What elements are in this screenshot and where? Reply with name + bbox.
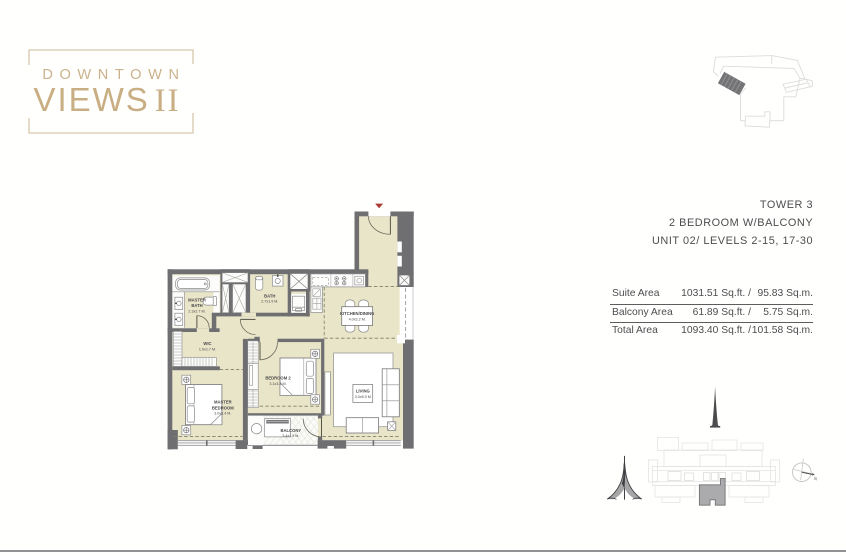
svg-text:MASTER: MASTER	[188, 297, 206, 302]
svg-text:BEDROOM: BEDROOM	[212, 405, 234, 410]
svg-text:BEDROOM 2: BEDROOM 2	[265, 375, 291, 380]
svg-text:BATH: BATH	[191, 303, 202, 308]
svg-text:BALCONY: BALCONY	[280, 428, 301, 433]
svg-text:3.0x3.4 M.: 3.0x3.4 M.	[214, 412, 231, 416]
svg-text:KITCHEN/DINING: KITCHEN/DINING	[340, 311, 374, 316]
svg-text:1.0x1.7 M.: 1.0x1.7 M.	[199, 347, 216, 351]
svg-text:MASTER: MASTER	[214, 400, 232, 405]
svg-text:3.0x5.0 M: 3.0x5.0 M	[355, 395, 371, 399]
svg-text:LIVING: LIVING	[356, 389, 370, 394]
svg-text:3.1x3.3 M.: 3.1x3.3 M.	[269, 382, 286, 386]
svg-text:WIC: WIC	[203, 341, 211, 346]
svg-text:BATH: BATH	[264, 293, 275, 298]
svg-text:2.7x1.9 M.: 2.7x1.9 M.	[261, 300, 278, 304]
svg-text:3.4x1.9 M.: 3.4x1.9 M.	[282, 434, 299, 438]
svg-text:N: N	[813, 476, 817, 482]
svg-text:2.3x2.7 M.: 2.3x2.7 M.	[188, 309, 205, 313]
svg-text:4.0x3.2 M.: 4.0x3.2 M.	[349, 318, 366, 322]
